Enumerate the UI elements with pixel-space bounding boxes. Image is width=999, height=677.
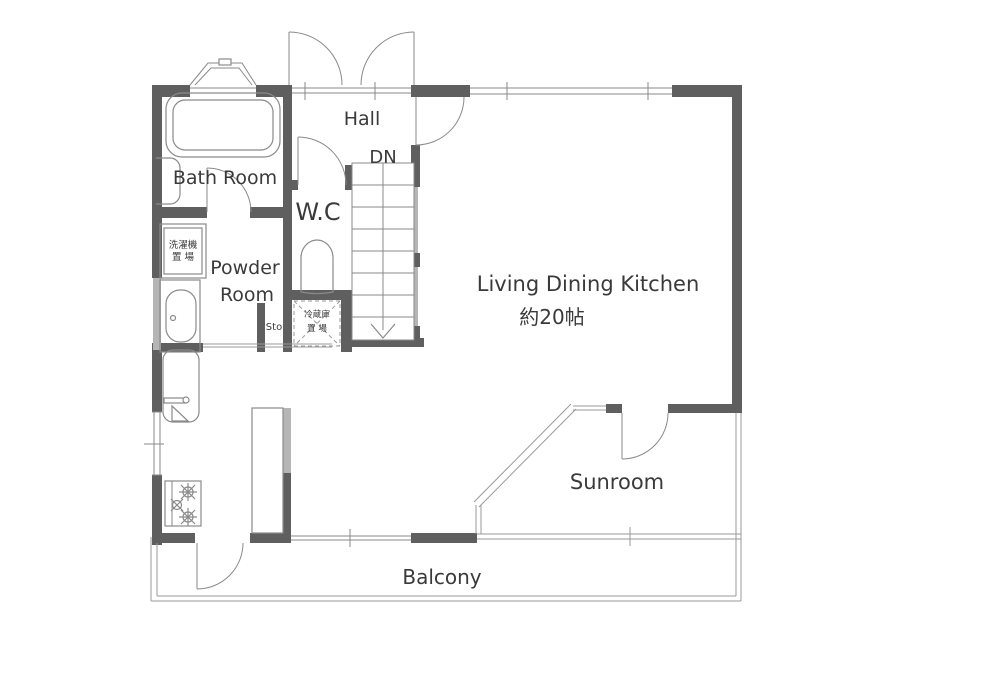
bathtub [166, 93, 280, 157]
bath-room-label: Bath Room [173, 167, 277, 189]
ldk-label-line2: 約20帖 [519, 305, 584, 329]
wc-door [298, 137, 346, 185]
ldk-door [416, 97, 464, 145]
washing-machine-label-line1: 洗濯機 [169, 239, 198, 251]
powder-room-label-line1: Powder [210, 257, 280, 279]
refrigerator-label-line1: 冷蔵庫 [304, 309, 330, 320]
washing-machine-space [160, 224, 206, 278]
kitchen-sink [163, 350, 199, 422]
entrance-doors [289, 32, 414, 100]
balcony-window [291, 529, 411, 547]
washing-machine-label-line2: 置 場 [172, 251, 195, 263]
refrigerator-label-line2: 置 場 [307, 323, 327, 334]
floor-plan-drawing: Bath Room Hall DN W.C Powder Room 洗濯機 置 … [0, 0, 999, 677]
stairs [352, 163, 414, 340]
floor-plan: Bath Room Hall DN W.C Powder Room 洗濯機 置 … [0, 0, 999, 677]
ldk-label-line1: Living Dining Kitchen [477, 272, 700, 296]
powder-room-label-line2: Room [220, 284, 274, 306]
bay-window [190, 59, 256, 93]
storage-label: Sto [266, 322, 282, 333]
interior-walls [152, 85, 737, 533]
balcony-label: Balcony [402, 565, 481, 589]
labels: Bath Room Hall DN W.C Powder Room 洗濯機 置 … [169, 108, 700, 589]
vanity-sink [160, 280, 200, 352]
sunroom-door [622, 413, 668, 459]
stairs-down-label: DN [369, 147, 396, 168]
sunroom-label: Sunroom [570, 470, 664, 494]
hall-label: Hall [344, 108, 381, 130]
kitchen-window [144, 412, 164, 475]
wc-label: W.C [295, 198, 340, 226]
stove [165, 481, 201, 526]
balcony-door [197, 543, 243, 589]
living-top-window [470, 82, 672, 100]
kitchen-counter [252, 408, 283, 533]
toilet [301, 240, 333, 294]
